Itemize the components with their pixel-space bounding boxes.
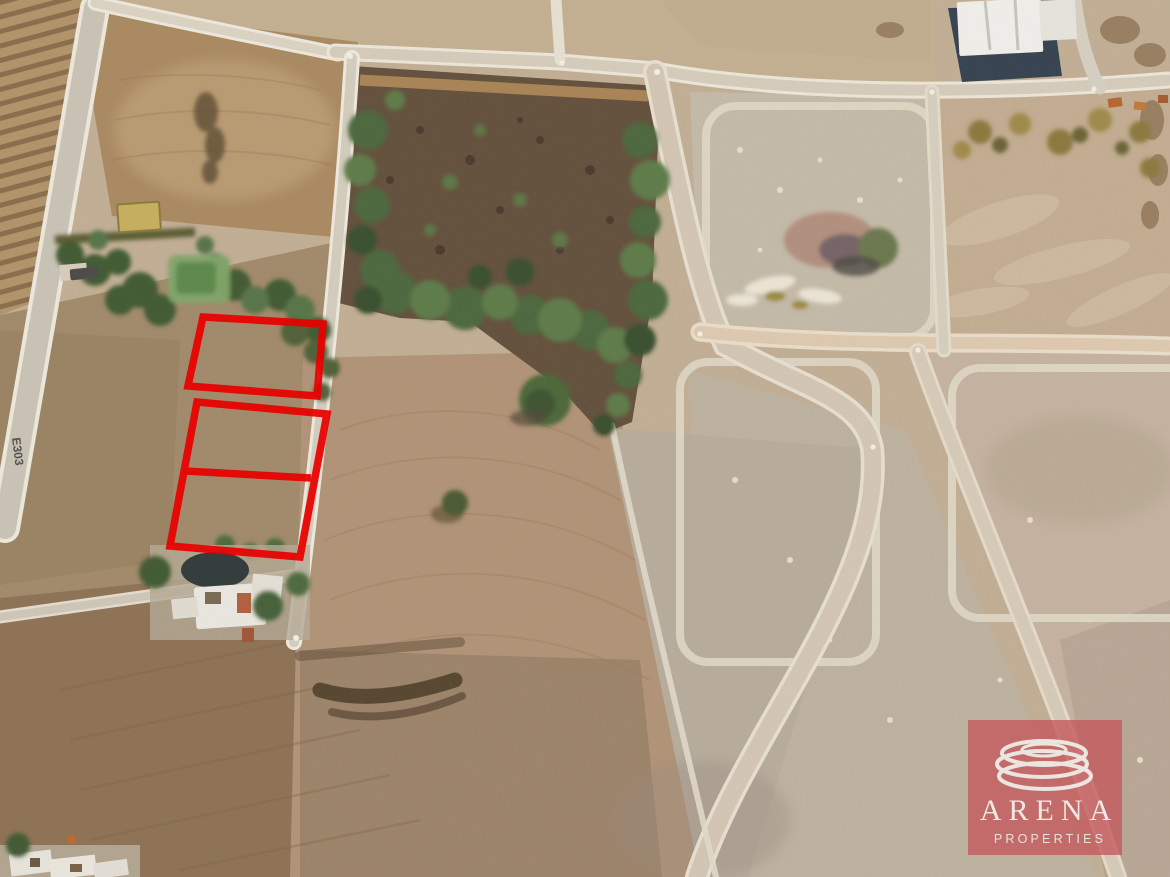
brand-tagline: PROPERTIES [994, 832, 1106, 846]
watermark: ARENA PROPERTIES [968, 720, 1122, 855]
property-aerial-photo: E303 ARENA PROPERTIES [0, 0, 1170, 877]
brand-name: ARENA [980, 794, 1118, 827]
satellite-image: E303 ARENA PROPERTIES [0, 0, 1170, 877]
